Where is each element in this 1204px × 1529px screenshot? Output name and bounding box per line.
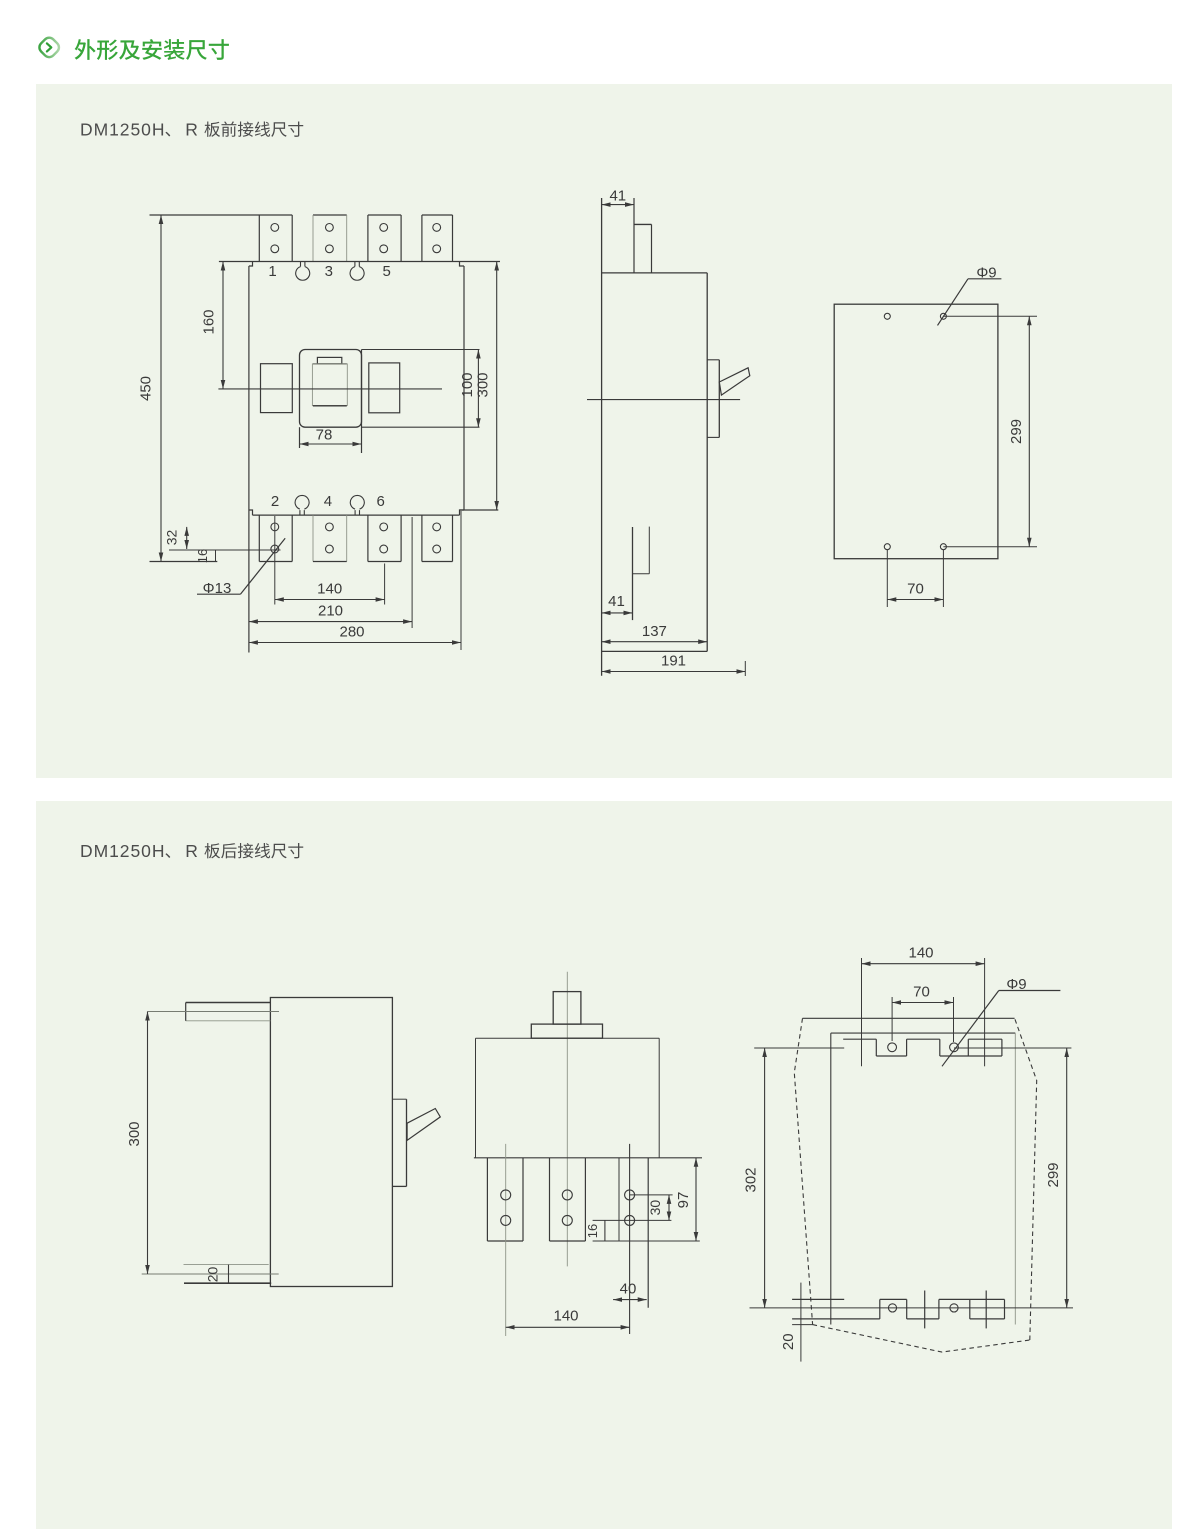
svg-text:299: 299	[1008, 419, 1025, 444]
svg-text:DM1250H: DM1250H	[80, 841, 165, 861]
svg-text:30: 30	[647, 1200, 663, 1216]
svg-text:100: 100	[459, 372, 476, 397]
svg-text:300: 300	[475, 372, 492, 397]
svg-text:97: 97	[675, 1192, 692, 1209]
svg-text:41: 41	[609, 188, 626, 205]
svg-text:302: 302	[743, 1167, 760, 1192]
svg-text:4: 4	[324, 493, 332, 510]
svg-text:450: 450	[138, 376, 155, 401]
svg-text:3: 3	[325, 263, 333, 280]
svg-text:R: R	[185, 120, 198, 140]
svg-text:299: 299	[1045, 1162, 1062, 1187]
svg-text:16: 16	[585, 1224, 600, 1238]
svg-text:137: 137	[642, 623, 667, 640]
svg-text:41: 41	[608, 593, 625, 610]
svg-text:5: 5	[383, 263, 391, 280]
svg-text:210: 210	[318, 603, 343, 620]
svg-text:140: 140	[317, 581, 342, 598]
svg-text:6: 6	[377, 493, 385, 510]
svg-text:70: 70	[913, 984, 930, 1001]
svg-text:300: 300	[126, 1121, 143, 1146]
svg-text:70: 70	[907, 581, 924, 598]
svg-text:20: 20	[205, 1267, 221, 1283]
svg-text:140: 140	[908, 945, 933, 962]
svg-text:32: 32	[164, 530, 180, 546]
svg-text:20: 20	[780, 1333, 797, 1350]
svg-text:78: 78	[316, 427, 333, 444]
svg-text:40: 40	[620, 1281, 637, 1298]
svg-text:191: 191	[661, 653, 686, 670]
svg-text:16: 16	[195, 549, 210, 563]
svg-text:R: R	[185, 841, 198, 861]
svg-text:160: 160	[201, 309, 218, 334]
svg-text:1: 1	[268, 263, 276, 280]
svg-text:DM1250H: DM1250H	[80, 120, 165, 140]
svg-text:140: 140	[553, 1308, 578, 1325]
svg-text:280: 280	[339, 624, 364, 641]
svg-text:2: 2	[271, 493, 279, 510]
